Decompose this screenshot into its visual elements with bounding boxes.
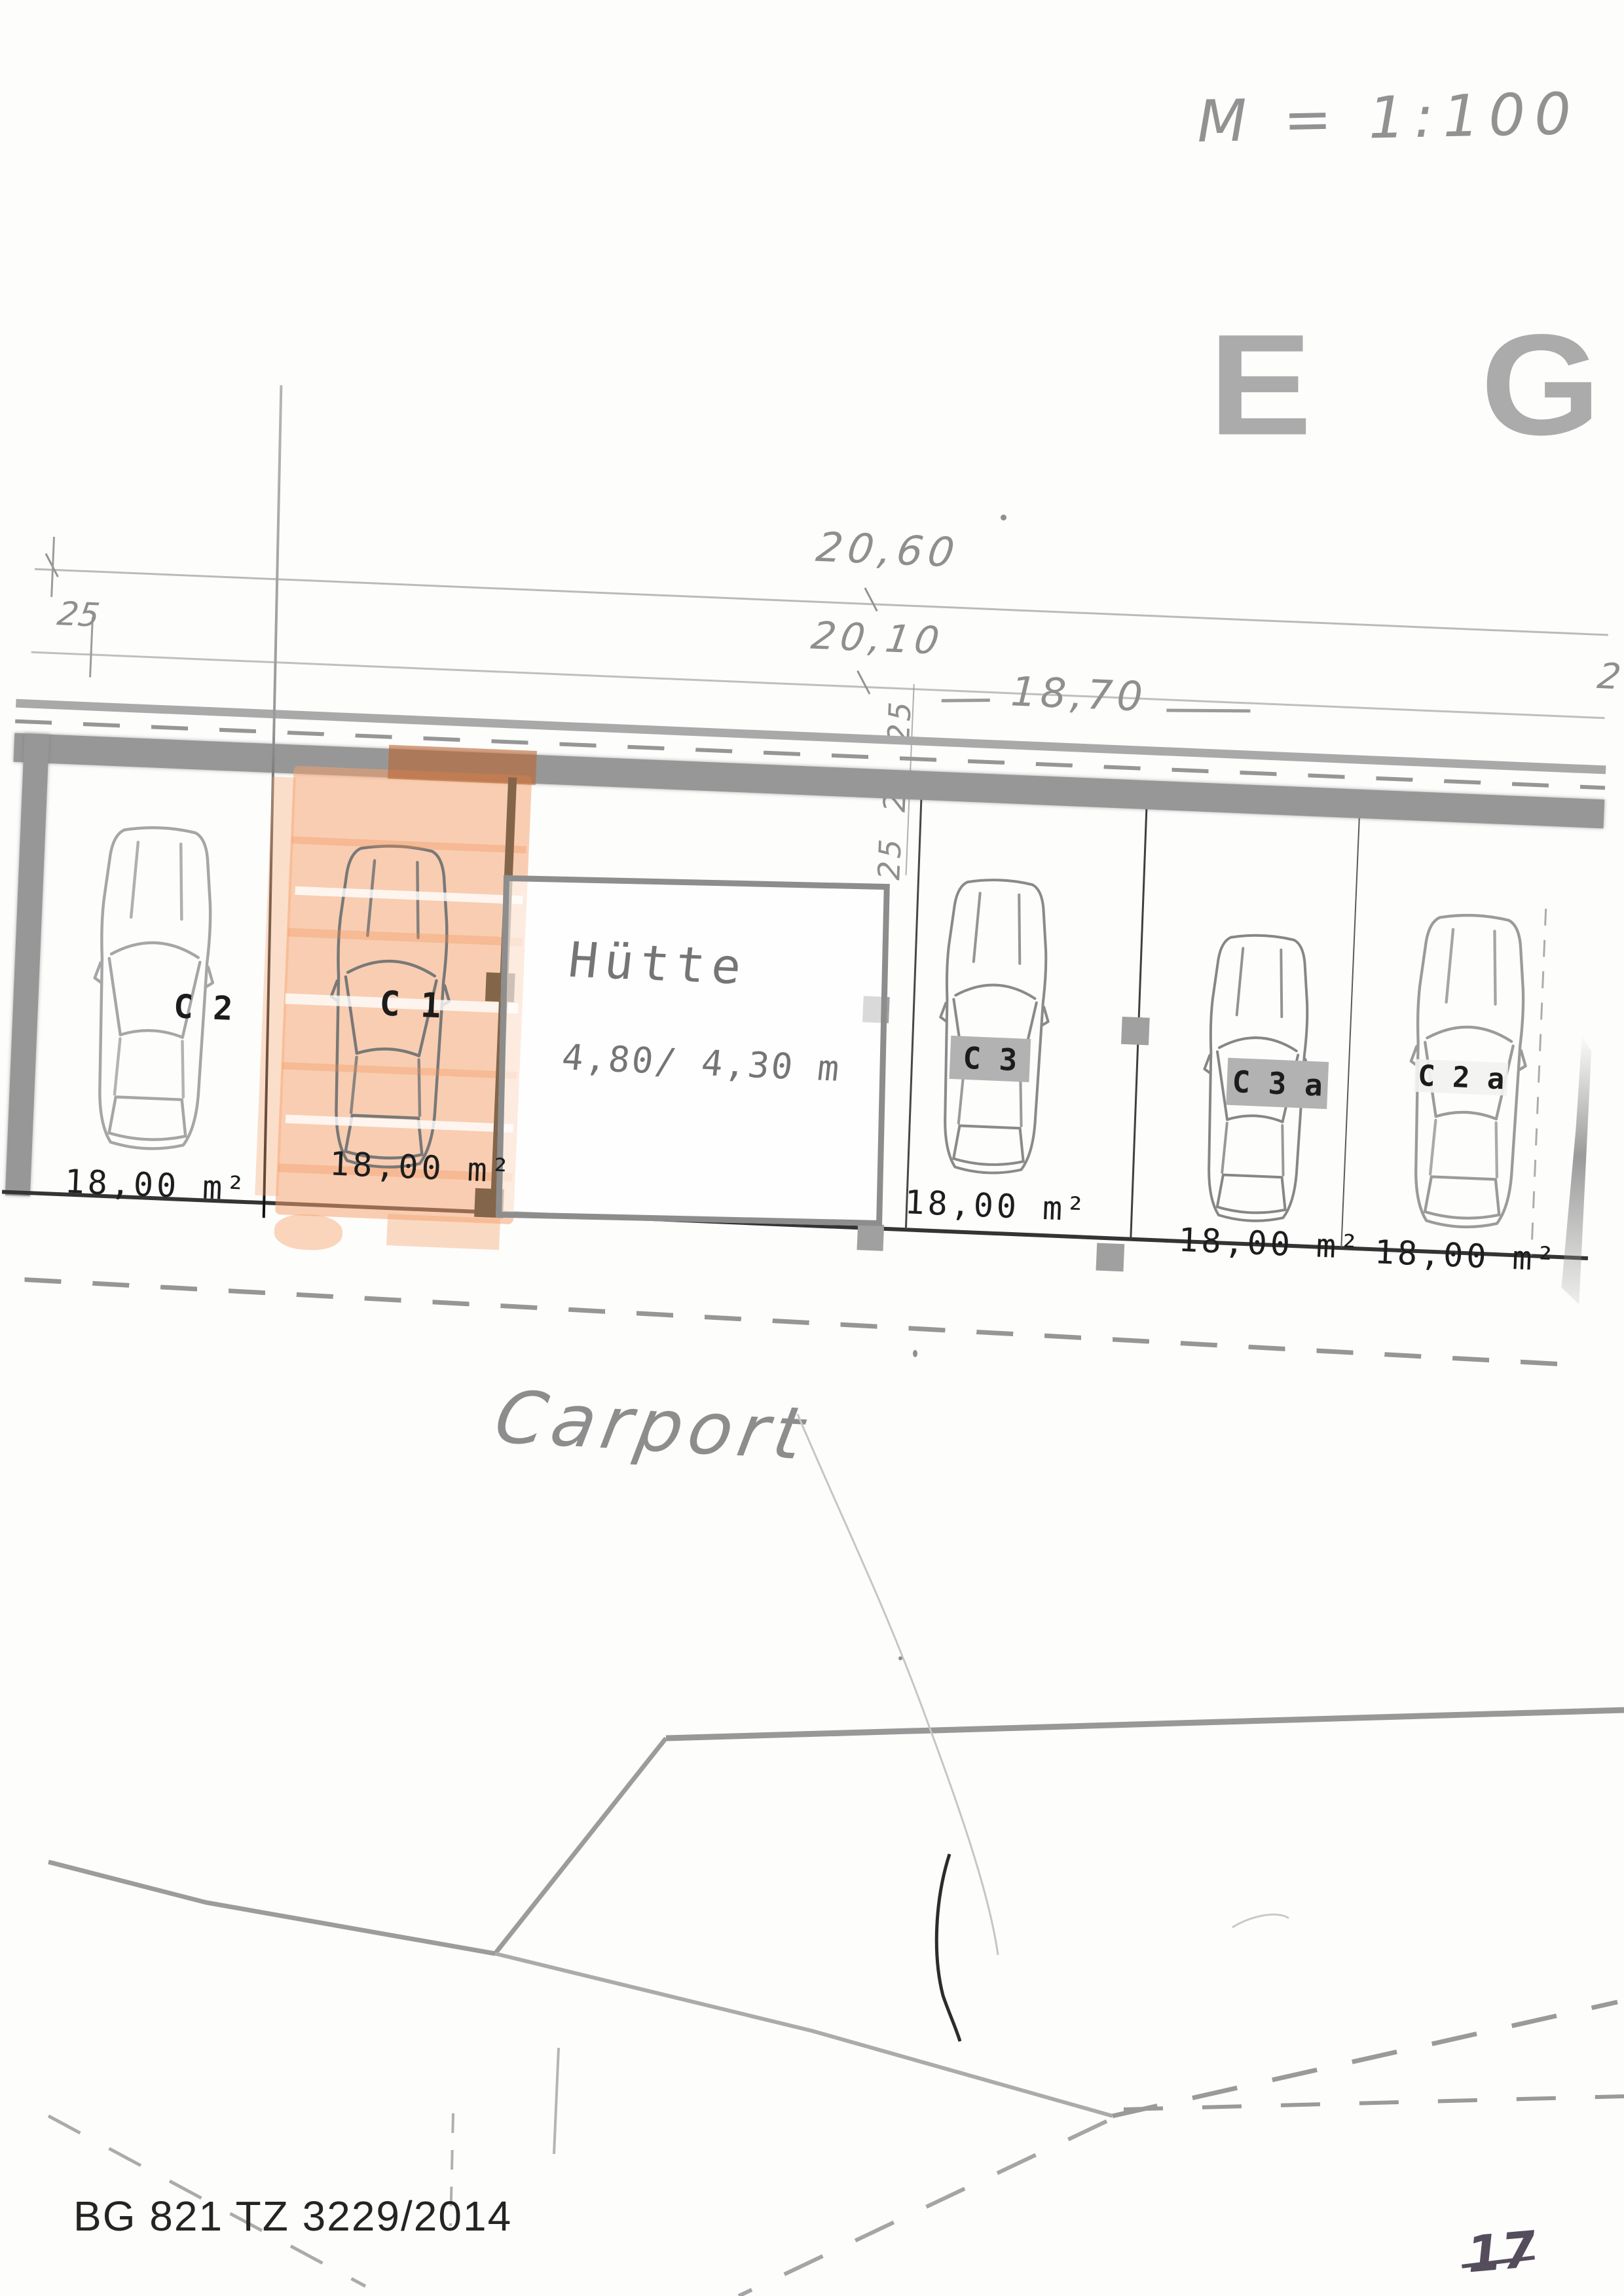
property-boundary-lines (0, 0, 1624, 2296)
page-number: 17 (1464, 2220, 1538, 2284)
scan-speck (913, 1350, 917, 1357)
scan-speck (1001, 515, 1006, 520)
document-reference: BG 821 TZ 3229/2014 (73, 2192, 512, 2240)
scanned-plan-page: M = 1:100 E G 20,60 20,10 25 2 18,70 25 … (0, 0, 1624, 2296)
scan-speck (898, 1656, 902, 1660)
